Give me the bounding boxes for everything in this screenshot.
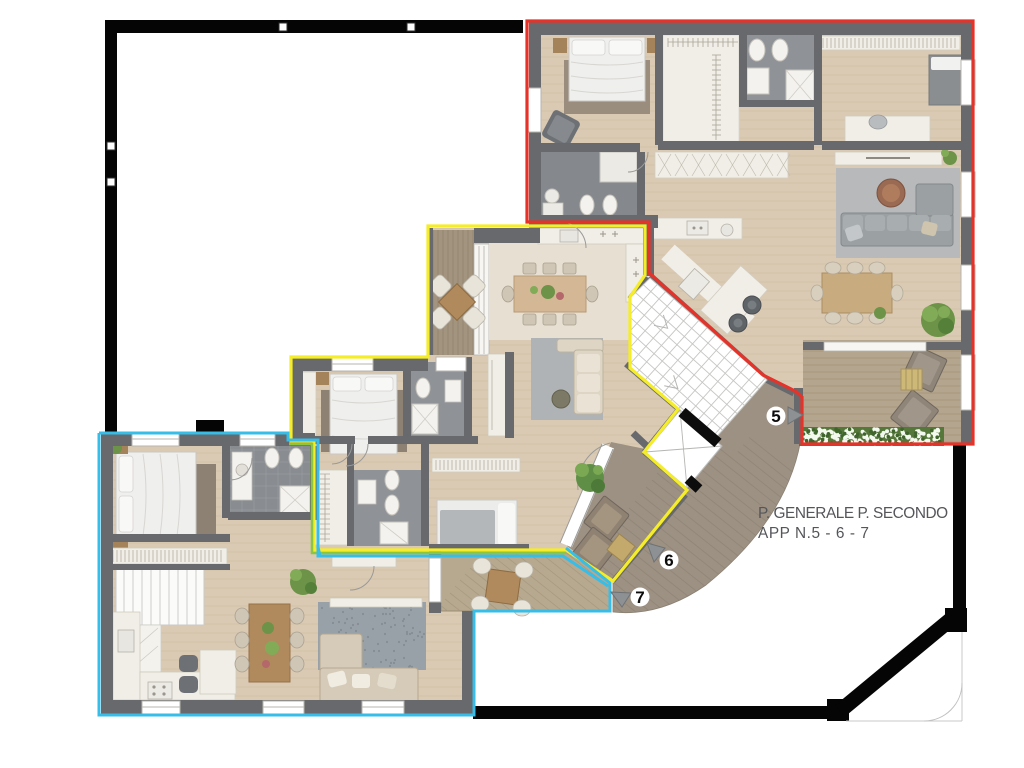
svg-text:5: 5 — [771, 407, 780, 426]
svg-text:7: 7 — [635, 588, 644, 607]
svg-text:APP N.5 - 6 - 7: APP N.5 - 6 - 7 — [758, 525, 869, 542]
svg-text:P. GENERALE P. SECONDO: P. GENERALE P. SECONDO — [758, 505, 948, 522]
svg-text:6: 6 — [664, 551, 673, 570]
